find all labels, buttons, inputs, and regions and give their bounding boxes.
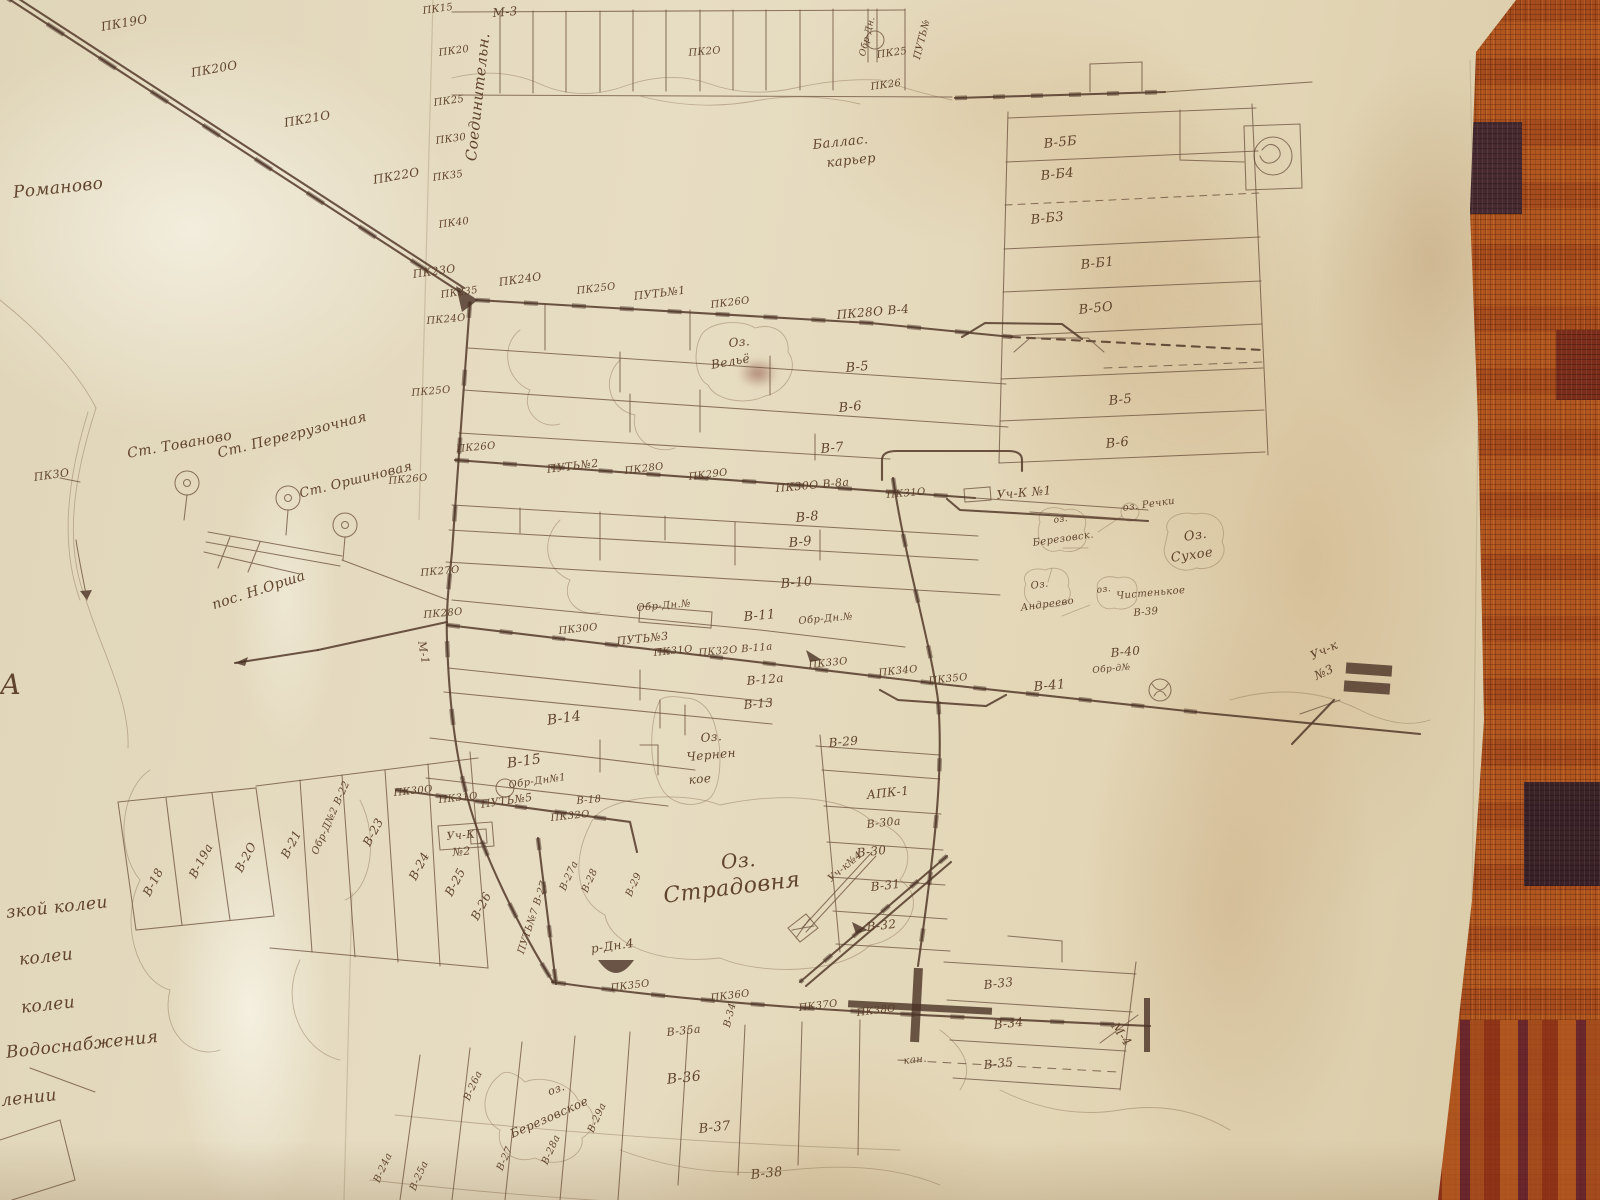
map-label: Сухое [1170,545,1214,566]
uch3-hatched-bar [1346,662,1393,676]
terrain-contours [0,73,1430,1200]
map-label: В-5 [845,359,870,376]
railway-put-7 [538,838,556,984]
map-label: кое [688,771,712,787]
map-label: В-18 [576,794,602,807]
map-labels-layer: ПК19ОПК20ОПК21ОПК22ОРомановоПК23ОПК235ПК… [0,0,1600,1200]
map-label: зкой колеи [5,892,109,923]
map-label: ПК24О [498,270,543,289]
map-label: В-Б4 [1040,166,1075,184]
map-label: В-11 [743,607,776,625]
map-label: В-33 [983,975,1014,992]
map-label: В-28 [580,867,600,894]
rail-crossing-bar [910,968,923,1042]
map-label: ПК30 [435,132,467,147]
map-label: В-34 [993,1015,1024,1032]
map-label: ПК32О [550,809,590,824]
map-label: ПУТЬ№1 [633,284,686,303]
map-label: В-30 [856,843,887,860]
map-label: ПК21О [283,108,332,130]
railway-apk-column [893,478,940,966]
map-label: ПК25О [411,385,451,399]
map-label: Обр-Дн.№ [636,598,691,614]
map-label: В-31 [870,877,901,894]
ink-stain [738,358,778,388]
map-label: Уч-К [446,828,476,843]
map-label: ПК35О [928,672,968,687]
map-label: Романово [12,174,104,203]
railway-bottom [552,982,1150,1026]
map-label: р-Дн.4 [590,936,635,956]
map-label: Березовск. [1032,529,1095,548]
map-label: А [0,668,22,701]
map-label: В-26а [462,1069,485,1102]
map-label: В-6 [1105,435,1130,452]
switch-symbol [806,650,822,662]
map-label: Обр-Д№2 В-22 [310,779,352,856]
map-label: В-9 [788,534,813,551]
map-label: ПК38О [856,1003,896,1019]
map-label: ПК30О [393,784,433,799]
map-label: Березовское [508,1094,591,1141]
railway-diagonal-southeast [800,856,947,982]
map-label: ПК26О [456,441,496,455]
map-label: В-40 [1110,643,1141,660]
map-label: пос. Н.Орша [210,568,307,613]
map-label: ПК235 [440,285,479,301]
map-label: ПК26 [870,78,902,93]
map-label: оз. [1053,514,1069,526]
map-label: В-24а [372,1151,395,1184]
map-label: В-29а [586,1101,609,1134]
map-label: Оз. [1030,578,1049,591]
map-label: В-5О [1078,299,1114,318]
siding-trapezoid [1014,338,1104,352]
map-label: ПК30О В-8а [775,476,850,495]
map-label: ПК23О [412,262,457,281]
water-stain [1060,60,1320,480]
map-label: ПК19О [100,12,149,34]
map-label: В-19а [186,841,216,881]
map-label: №3 [1312,662,1336,683]
map-label: Чистенькое [1116,585,1186,602]
station-tovanovo-symbol [175,471,199,495]
map-label: ПК27О [420,565,460,579]
map-label: Ст. Оршиновая [298,459,414,502]
switch-symbol [852,922,868,934]
map-label: ПК22О [372,165,421,187]
map-label: В-27 [495,1145,515,1172]
map-label: В-8 [795,509,820,526]
railway-tick-marks [0,0,1205,1026]
map-label: №2 [452,844,471,859]
map-label: Ст. Перегрузочная [216,409,369,462]
map-label: ПК37О [798,998,838,1014]
map-label: ПК31О [438,791,478,806]
map-label: колеи [20,992,76,1018]
map-label: ПК28О В-4 [836,302,910,322]
map-label: Страдовня [662,867,802,909]
map-label: ПУТЬ№ [912,18,933,60]
map-label: Соединительн. [462,32,493,162]
map-label: Оз. [728,334,751,350]
map-label: ПК15 [422,2,454,17]
map-label: оз. [1096,584,1112,596]
railway-lines [0,0,1420,1026]
railway-top-right [955,92,1165,98]
map-label: В-25а [408,1159,431,1192]
map-label: ПУТЬ№5 [480,791,533,811]
map-label: ПК26О [388,473,428,487]
map-label: Обр-Дн№1 [508,772,567,791]
map-label: В-12а [746,671,784,688]
map-label: В-13 [743,695,774,712]
obr-circle-symbol [496,779,514,797]
map-label: В-38 [750,1165,783,1183]
railway-main-vertical [447,302,553,982]
map-label: В-2О [232,840,259,875]
map-label: оз. [546,1080,567,1098]
flow-arrow [76,540,87,600]
map-label: оз. Речки [1122,496,1176,514]
map-label: ПК20О [190,58,239,80]
map-label: В-5Б [1043,134,1078,152]
map-label: Андреево [1020,596,1075,614]
map-label: ПК40 [438,216,470,231]
uch3-hatched-bar [1344,680,1391,694]
paper-fold-lines [344,0,1478,1200]
map-label: ПК24О [426,313,466,327]
map-label: ПК31О [653,644,693,659]
map-label: В-15 [506,751,542,772]
map-label: ПК36О [710,988,750,1004]
map-label: ПУТЬ№2 [546,457,599,476]
map-label: Водоснабжения [5,1027,159,1063]
map-label: ПК25 [433,94,465,109]
map-label: Уч-к [1308,638,1340,663]
map-label: Уч-К №1 [996,483,1052,502]
railway-put-1 [476,300,1012,337]
flow-arrowhead [80,590,92,600]
map-label: ПК26О [710,295,750,311]
map-label: В-36 [666,1068,702,1088]
station-peregruzochnaya-symbol [276,486,300,510]
parcel-grid [0,9,1340,1200]
map-label: Оз. [700,729,723,745]
carpet-dark-patch [1556,330,1600,400]
rail-junction-wedge [456,286,478,312]
station-orshinovaya-symbol [333,513,357,537]
map-label: В-23 [360,816,386,849]
map-label: ПК34О [878,664,918,679]
map-label: Оз. [720,847,757,874]
station-symbols [76,338,1171,797]
map-label: В-24 [406,850,432,883]
railway-from-romanovo [0,0,460,292]
map-label: В-35 [983,1055,1014,1072]
map-label: колеи [18,944,74,970]
railway-put-3 [447,625,1420,734]
map-label: Обр-Дн. [858,16,878,58]
m4-terminal-bar [1144,998,1150,1052]
map-label: карьер [826,151,877,171]
map-label: В-Б3 [1030,210,1065,228]
map-label: ПК28О [624,461,664,477]
photo-of-survey-map: ПК19ОПК20ОПК21ОПК22ОРомановоПК23ОПК235ПК… [0,0,1600,1200]
map-label: ПК35 [432,169,464,184]
map-symbols [80,286,1392,1052]
map-label: ПК35О [610,978,650,994]
map-label: В-18 [140,866,166,899]
map-label: лении [0,1085,58,1111]
map-label: В-35а [666,1022,702,1039]
carpet-dark-patch [1524,782,1600,886]
map-label: ПК3О [33,466,70,484]
map-label: В-28а [540,1133,563,1166]
map-label: В-32 [866,917,897,934]
map-label: Баллас. [812,132,869,153]
map-label: В-21 [278,828,304,861]
map-label: Обр-д№ [1092,663,1131,676]
map-label: ПУТЬ№7 В-27 [516,880,550,956]
map-label: Вельё [710,351,751,372]
map-label: В-27а [558,859,581,892]
map-label: Ст. Тованово [126,428,233,462]
map-label: В-39 [1133,606,1159,619]
map-label: В-30а [866,814,902,831]
map-label: ПК25 [876,46,908,61]
map-label: Обр-Дн.№ [798,611,853,627]
map-label: ПК30О [558,622,598,637]
map-label: В-10 [780,574,813,592]
map-label: ПУТЬ№3 [616,630,669,648]
obr-circle-symbol [1149,679,1171,701]
map-label: ПК20 [438,44,470,59]
map-label: В-26 [468,890,494,923]
map-paper-sheet: ПК19ОПК20ОПК21ОПК22ОРомановоПК23ОПК235ПК… [0,0,1600,1200]
map-label: М-1 [415,640,432,665]
map-label: ПК31О [886,487,926,501]
map-label: В-14 [546,708,582,729]
map-label: ПК25О [576,281,616,297]
reservoir-half-disc [598,960,634,973]
map-label: ПК29О [688,467,728,483]
map-label: М-4 [1109,1020,1135,1049]
map-label: В-41 [1033,677,1066,695]
orsha-arrowhead [235,657,248,666]
map-label: В-Б1 [1080,255,1115,273]
map-label: В-34 [722,1002,739,1029]
map-label: М-3 [492,4,518,20]
map-label: Чернен [686,746,736,764]
map-label: В-29 [828,733,859,750]
railway-put-5 [396,790,637,852]
map-label: В-5 [1108,392,1133,409]
map-label: ПК2О [688,45,721,59]
map-label: В-29 [624,871,644,898]
map-label: Уч-к№4 [826,850,865,885]
map-label: кан. [903,1054,927,1067]
map-label: Оз. [1183,527,1208,545]
map-label: ПК33О [808,656,848,671]
map-label: В-37 [698,1119,731,1137]
map-label: В-25 [442,866,468,899]
map-label: АПК-1 [866,784,910,802]
map-label: ПК28О [423,607,463,621]
railway-put-2 [455,460,975,498]
map-label: В-6 [838,399,863,416]
map-label: В-7 [820,440,845,457]
map-label: ПК32О В-11а [698,642,773,659]
map-drawing [0,0,1600,1200]
